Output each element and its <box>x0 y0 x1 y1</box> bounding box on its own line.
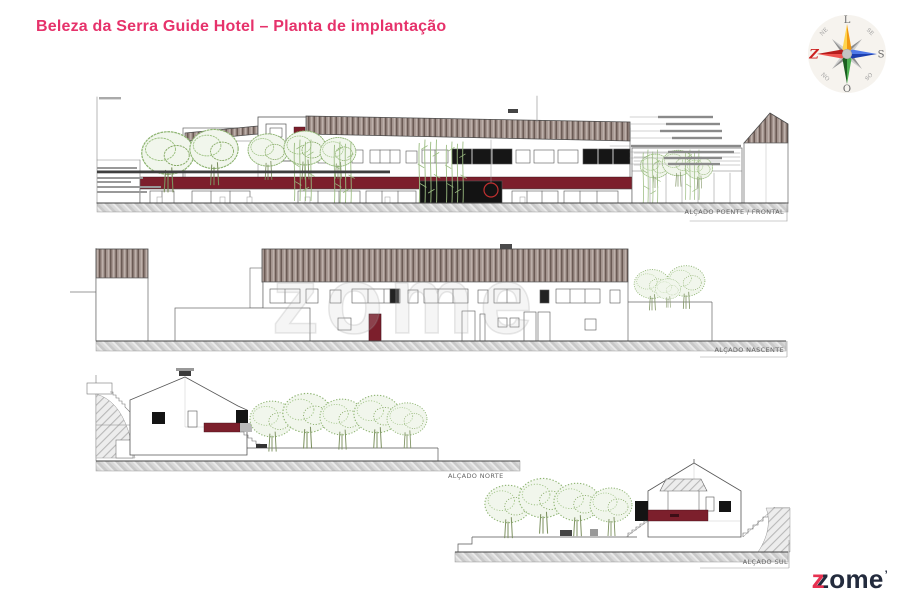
ground-hatch <box>96 341 786 351</box>
alcado-nascente-drawing: zome <box>70 244 787 357</box>
label-alcado-norte: ALÇADO NORTE <box>448 472 504 480</box>
building-section <box>648 463 741 537</box>
logo-text: zome <box>816 564 884 594</box>
trees <box>634 266 705 311</box>
logo-mark: ’ <box>885 569 888 581</box>
logo-z-overlay: z <box>812 564 825 594</box>
drawing-sheet: Beleza da Serra Guide Hotel – Planta de … <box>0 0 900 597</box>
compass-rose: L S O Z NE SE SO NO <box>806 13 888 95</box>
watermark: zome <box>272 248 539 354</box>
trees <box>250 393 427 451</box>
ground-hatch <box>455 552 788 562</box>
label-alcado-poente: ALÇADO POENTE / FRONTAL <box>685 208 784 216</box>
alcado-poente-drawing <box>97 96 788 221</box>
zome-logo: zzome’ <box>812 566 888 592</box>
ground-hatch <box>96 461 520 471</box>
terrace-band <box>140 177 642 189</box>
maroon-band <box>204 423 240 432</box>
compass-north-label: Z <box>808 48 819 63</box>
retaining-slope <box>758 508 790 552</box>
trees <box>485 478 632 538</box>
label-alcado-sul: ALÇADO SUL <box>743 558 788 566</box>
alcado-sul-drawing <box>455 459 790 568</box>
alcado-norte-drawing <box>87 368 520 471</box>
porch-roof <box>660 479 707 491</box>
compass-west-label: O <box>843 84 851 95</box>
elevation-drawings: zome <box>0 0 900 597</box>
label-alcado-nascente: ALÇADO NASCENTE <box>714 346 784 354</box>
compass-south-label: S <box>878 50 885 61</box>
boundary-note <box>99 97 121 99</box>
compass-east-label: L <box>844 15 851 26</box>
